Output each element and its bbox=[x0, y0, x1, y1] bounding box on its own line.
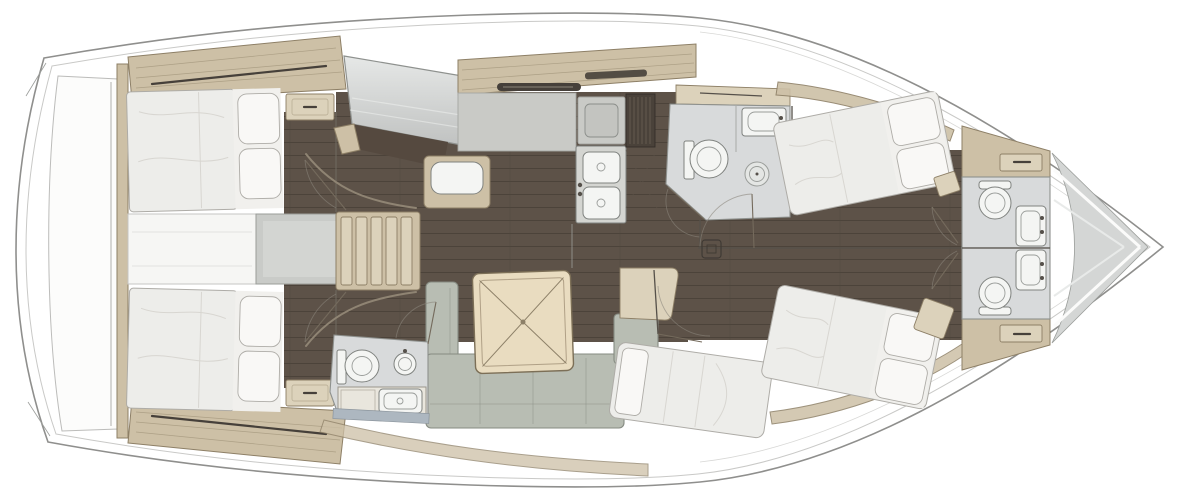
step bbox=[371, 217, 382, 285]
pillow bbox=[239, 148, 281, 199]
pillow bbox=[238, 93, 280, 144]
bow-head-starboard bbox=[962, 248, 1050, 319]
toilet bbox=[345, 350, 379, 382]
faucet bbox=[1040, 262, 1044, 266]
toilet bbox=[979, 277, 1011, 309]
head-counter bbox=[676, 85, 790, 106]
washbasin bbox=[394, 353, 416, 375]
faucet bbox=[578, 183, 582, 187]
step bbox=[386, 217, 397, 285]
faucet bbox=[1040, 216, 1044, 220]
sink-bowl bbox=[583, 187, 620, 219]
washbasin bbox=[1016, 250, 1046, 290]
corner-seat bbox=[620, 268, 678, 320]
aft-trim-strip bbox=[117, 64, 128, 438]
worktop bbox=[458, 93, 576, 151]
toilet bbox=[690, 140, 728, 178]
nav-seat bbox=[431, 162, 483, 194]
engine-hatch bbox=[128, 214, 256, 284]
companionway-steps bbox=[336, 212, 420, 290]
toilet bbox=[979, 187, 1011, 219]
step bbox=[356, 217, 367, 285]
faucet bbox=[779, 116, 783, 120]
sink-bowl bbox=[583, 152, 620, 183]
yacht-floor-plan bbox=[0, 0, 1200, 500]
step bbox=[341, 217, 352, 285]
double-berth bbox=[126, 88, 283, 212]
bow-head-port bbox=[962, 177, 1050, 248]
step bbox=[401, 217, 412, 285]
washbasin bbox=[1016, 206, 1046, 246]
floor-plan-canvas bbox=[0, 0, 1200, 500]
pillow bbox=[239, 296, 281, 347]
pillow bbox=[238, 351, 280, 402]
transom-platform bbox=[49, 64, 128, 438]
faucet bbox=[403, 349, 407, 353]
pillow bbox=[886, 96, 941, 147]
salon-table bbox=[472, 270, 573, 373]
double-berth bbox=[126, 288, 283, 412]
